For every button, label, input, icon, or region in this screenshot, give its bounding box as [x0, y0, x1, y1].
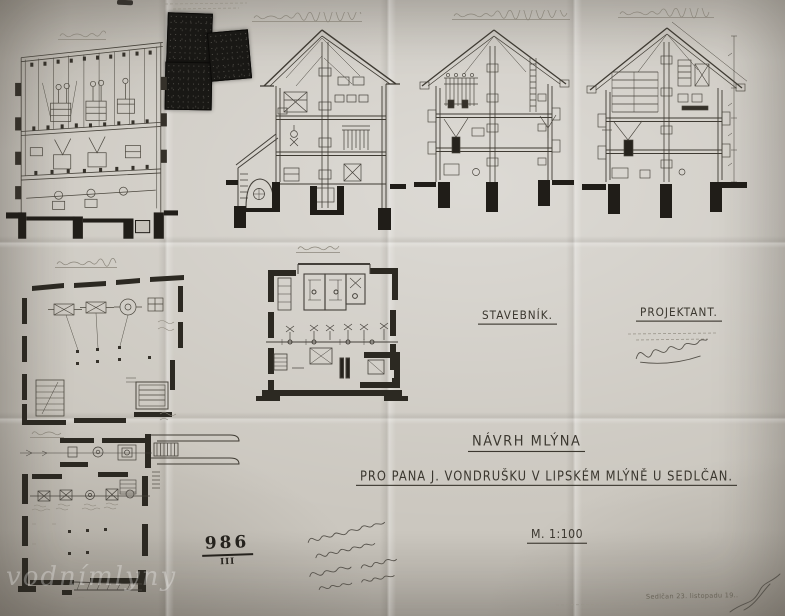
floor-plan-center-drawing — [252, 250, 412, 418]
date-note: Sedlčan 23. listopadu 19.. — [646, 591, 738, 601]
registry-number-stamp: 986 III — [201, 532, 253, 568]
cross-section-dimensioned-drawing — [582, 16, 747, 231]
designer-signature — [629, 337, 715, 371]
builder-heading: STAVEBNÍK. — [478, 309, 557, 325]
floor-plan-upper-drawing — [8, 262, 198, 432]
ink-blot — [117, 0, 133, 5]
longitudinal-section-drawing — [6, 24, 178, 242]
designer-heading: PROJEKTANT. — [636, 306, 722, 322]
cross-section-hopper-drawing — [414, 24, 574, 234]
site-plan-mill-race-drawing — [2, 424, 250, 616]
sheet-title: NÁVRH MLÝNA — [468, 433, 585, 452]
registry-roman: III — [202, 556, 253, 568]
scale-label: M. 1:100 — [527, 527, 587, 544]
corner-flourish-signature — [726, 570, 784, 616]
bottom-caption-print — [552, 600, 642, 610]
scanned-mill-plan-sheet: STAVEBNÍK. PROJEKTANT. NÁVRH MLÝNA PRO P… — [0, 0, 785, 616]
stamp-caption-print — [163, 1, 249, 13]
registry-number: 986 — [201, 532, 252, 557]
drawing-caption-squiggle — [452, 10, 570, 22]
handwritten-approval-notes — [298, 507, 480, 603]
cross-section-mill-drawing — [226, 22, 406, 237]
client-line: PRO PANA J. VONDRUŠKU V LIPSKÉM MLÝNĚ U … — [356, 468, 737, 486]
